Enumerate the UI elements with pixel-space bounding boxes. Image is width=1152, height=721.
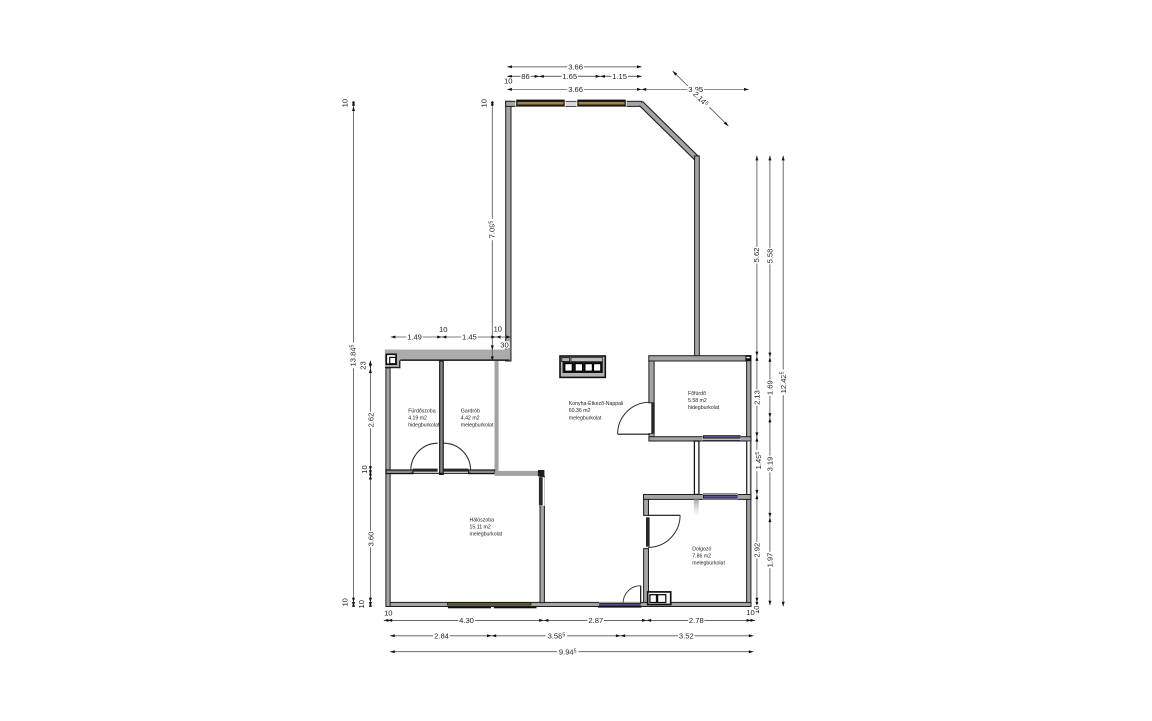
svg-text:23: 23: [359, 361, 368, 369]
svg-text:5.58: 5.58: [765, 249, 774, 264]
svg-text:10: 10: [341, 99, 350, 107]
svg-text:2.84: 2.84: [434, 632, 449, 641]
svg-text:3.60: 3.60: [366, 532, 375, 547]
svg-text:4.30: 4.30: [459, 616, 474, 625]
svg-text:hidegburkolat: hidegburkolat: [688, 405, 720, 411]
svg-text:Fürdőszoba: Fürdőszoba: [408, 409, 436, 415]
svg-text:10: 10: [384, 609, 392, 618]
svg-text:Dolgozó: Dolgozó: [692, 547, 711, 553]
svg-text:melegburkolat: melegburkolat: [692, 561, 725, 567]
svg-text:Konyha-Étkező-Nappali: Konyha-Étkező-Nappali: [569, 400, 624, 407]
svg-text:10: 10: [479, 99, 488, 107]
svg-text:3.66: 3.66: [568, 85, 583, 94]
svg-text:10: 10: [439, 325, 447, 334]
svg-text:3.19: 3.19: [766, 457, 775, 472]
svg-text:hidegburkolat: hidegburkolat: [408, 423, 440, 429]
svg-text:2.92: 2.92: [753, 543, 762, 558]
svg-text:86: 86: [521, 72, 529, 81]
svg-text:1.15: 1.15: [612, 72, 627, 81]
svg-text:3.66: 3.66: [568, 63, 583, 72]
svg-text:7.86 m2: 7.86 m2: [692, 554, 711, 560]
svg-text:10: 10: [340, 598, 349, 606]
svg-text:3.52: 3.52: [679, 632, 694, 641]
svg-text:10: 10: [746, 608, 754, 617]
svg-text:Gardrób: Gardrób: [461, 409, 480, 415]
svg-text:1.49: 1.49: [407, 333, 422, 342]
svg-text:2.62: 2.62: [366, 413, 375, 428]
svg-text:melegburkolat: melegburkolat: [569, 415, 602, 421]
svg-text:1.65: 1.65: [562, 72, 577, 81]
svg-text:10: 10: [504, 77, 512, 86]
svg-text:2.87: 2.87: [588, 616, 603, 625]
svg-text:1.45: 1.45: [462, 333, 477, 342]
svg-text:4.42 m2: 4.42 m2: [461, 416, 480, 422]
svg-text:melegburkolat: melegburkolat: [470, 532, 503, 538]
svg-text:Hálószoba: Hálószoba: [470, 518, 495, 524]
svg-text:12.425: 12.425: [779, 371, 788, 393]
svg-text:13.845: 13.845: [349, 344, 358, 366]
svg-text:15.11 m2: 15.11 m2: [470, 525, 491, 531]
svg-text:2.78: 2.78: [689, 616, 704, 625]
svg-text:melegburkolat: melegburkolat: [461, 423, 494, 429]
svg-text:10: 10: [360, 465, 369, 473]
svg-text:10: 10: [494, 325, 502, 334]
svg-text:Főfürdő: Főfürdő: [688, 391, 706, 397]
svg-text:5.62: 5.62: [752, 248, 761, 263]
svg-text:1.69: 1.69: [766, 380, 775, 395]
svg-text:30: 30: [500, 340, 508, 349]
svg-text:60.36 m2: 60.36 m2: [569, 408, 591, 414]
svg-text:10: 10: [357, 600, 366, 608]
svg-text:5.58 m2: 5.58 m2: [688, 398, 707, 404]
svg-text:2.13: 2.13: [753, 390, 762, 405]
svg-text:1.97: 1.97: [766, 553, 775, 568]
svg-text:4.19 m2: 4.19 m2: [408, 416, 427, 422]
